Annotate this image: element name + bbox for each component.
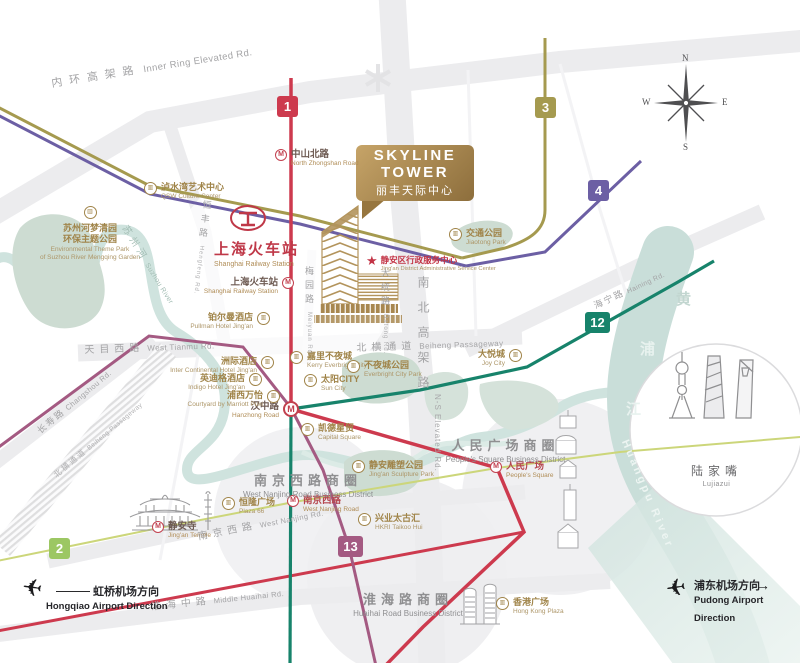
- poi-qsw-culture-center: ▥ 泸水湾艺术中心QSW Culture Center: [144, 182, 224, 201]
- poi-icon: ▥: [144, 182, 157, 195]
- poi-capital-square: ▥ 凯德星贸Capital Square: [301, 423, 361, 442]
- poi-icon: ▥: [358, 513, 371, 526]
- station-shanghai-railway: M 上海火车站Shanghai Railway Station: [204, 277, 294, 296]
- compass-east-label: E: [722, 97, 728, 107]
- title-line1: SKYLINE: [356, 148, 474, 165]
- line-13-badge: 13: [338, 536, 363, 557]
- district-huaihai: 淮海路商圈Huaihai Road Business District: [318, 591, 498, 619]
- compass-south-label: S: [683, 142, 688, 152]
- map-canvas: SKYLINE TOWER 丽丰天际中心 N E S W 1 3 4 12 2 …: [0, 0, 800, 663]
- road-label-ns-elevated-zh: 南北高架路: [414, 276, 432, 401]
- line-12-badge: 12: [585, 312, 610, 333]
- line-12-track-south: [290, 409, 291, 663]
- metro-station-icon: M: [152, 521, 164, 533]
- poi-icon: ▥: [304, 374, 317, 387]
- poi-pullman-hotel: ▥ 铂尔曼酒店Pullman Hotel Jing'an: [190, 312, 270, 331]
- poi-hong-kong-plaza: ▥ 香港广场Hong Kong Plaza: [496, 597, 564, 616]
- compass-north-label: N: [682, 53, 689, 63]
- road-label-ns-elevated-en: N-S Elevated Rd.: [428, 390, 446, 472]
- star-icon: ★: [366, 255, 378, 267]
- line-2-badge: 2: [49, 538, 70, 559]
- poi-icon: ▥: [84, 206, 97, 219]
- poi-icon: ▥: [261, 356, 274, 369]
- poi-icon: ▥: [347, 360, 360, 373]
- poi-taikoo-hui: ▥ 兴业太古汇HKRI Taikoo Hui: [358, 513, 423, 532]
- river-label-huangpu-char3: 江: [626, 398, 641, 419]
- poi-jiaotong-park: ▥ 交通公园Jiaotong Park: [449, 228, 506, 247]
- road-label-meiyuan: 梅园路Meiyuan Rd.: [300, 266, 318, 357]
- title-callout: SKYLINE TOWER 丽丰天际中心: [356, 145, 474, 201]
- lujiazui-label: 陆家嘴Lujiazui: [664, 462, 769, 491]
- compass-icon: [654, 64, 718, 142]
- poi-icon: ▥: [449, 228, 462, 241]
- poi-icon: ▥: [249, 373, 262, 386]
- hongqiao-plane-icon: ✈: [20, 573, 44, 605]
- metro-station-icon: M: [275, 149, 287, 161]
- line-4-badge: 4: [588, 180, 609, 201]
- map-geometry: [0, 0, 800, 663]
- pudong-plane-icon: ✈: [664, 573, 688, 605]
- title-line2: TOWER: [356, 165, 474, 182]
- river-label-huangpu-char1: 黄: [676, 288, 691, 309]
- hongqiao-arrow-line: [56, 591, 90, 592]
- shanghai-railway-station-label: 上海火车站 Shanghai Railway Station: [214, 238, 324, 268]
- poi-icon: ▥: [301, 423, 314, 436]
- station-north-zhongshan: M 中山北路North Zhongshan Road: [275, 149, 359, 168]
- poi-joy-city: ▥ 大悦城Joy City: [478, 349, 522, 368]
- river-label-huangpu-char2: 浦: [640, 338, 655, 359]
- title-subtitle: 丽丰天际中心: [356, 185, 474, 197]
- line-3-badge: 3: [535, 97, 556, 118]
- poi-icon: ▥: [267, 390, 280, 403]
- compass-west-label: W: [642, 97, 651, 107]
- metro-station-icon: M: [282, 277, 294, 289]
- line-1-badge: 1: [277, 96, 298, 117]
- poi-icon: ▥: [257, 312, 270, 325]
- hongqiao-direction-en: Hongqiao Airport Direction: [46, 596, 168, 614]
- pudong-direction-en: Pudong Airport Direction: [694, 590, 800, 626]
- road-label-datong: 大统路Datong Rd.: [376, 268, 394, 354]
- district-west-nanjing: 南京西路商圈West Nanjing Road Business Distric…: [213, 472, 403, 500]
- poi-courtyard-marriott: ▥ 浦西万怡Courtyard by Marriott Puxi: [188, 390, 281, 409]
- poi-icon: ▥: [509, 349, 522, 362]
- metro-interchange-icon: M: [283, 401, 299, 417]
- poi-everbright-city-park: ▥ 不夜城公园Everbright City Park: [347, 360, 422, 379]
